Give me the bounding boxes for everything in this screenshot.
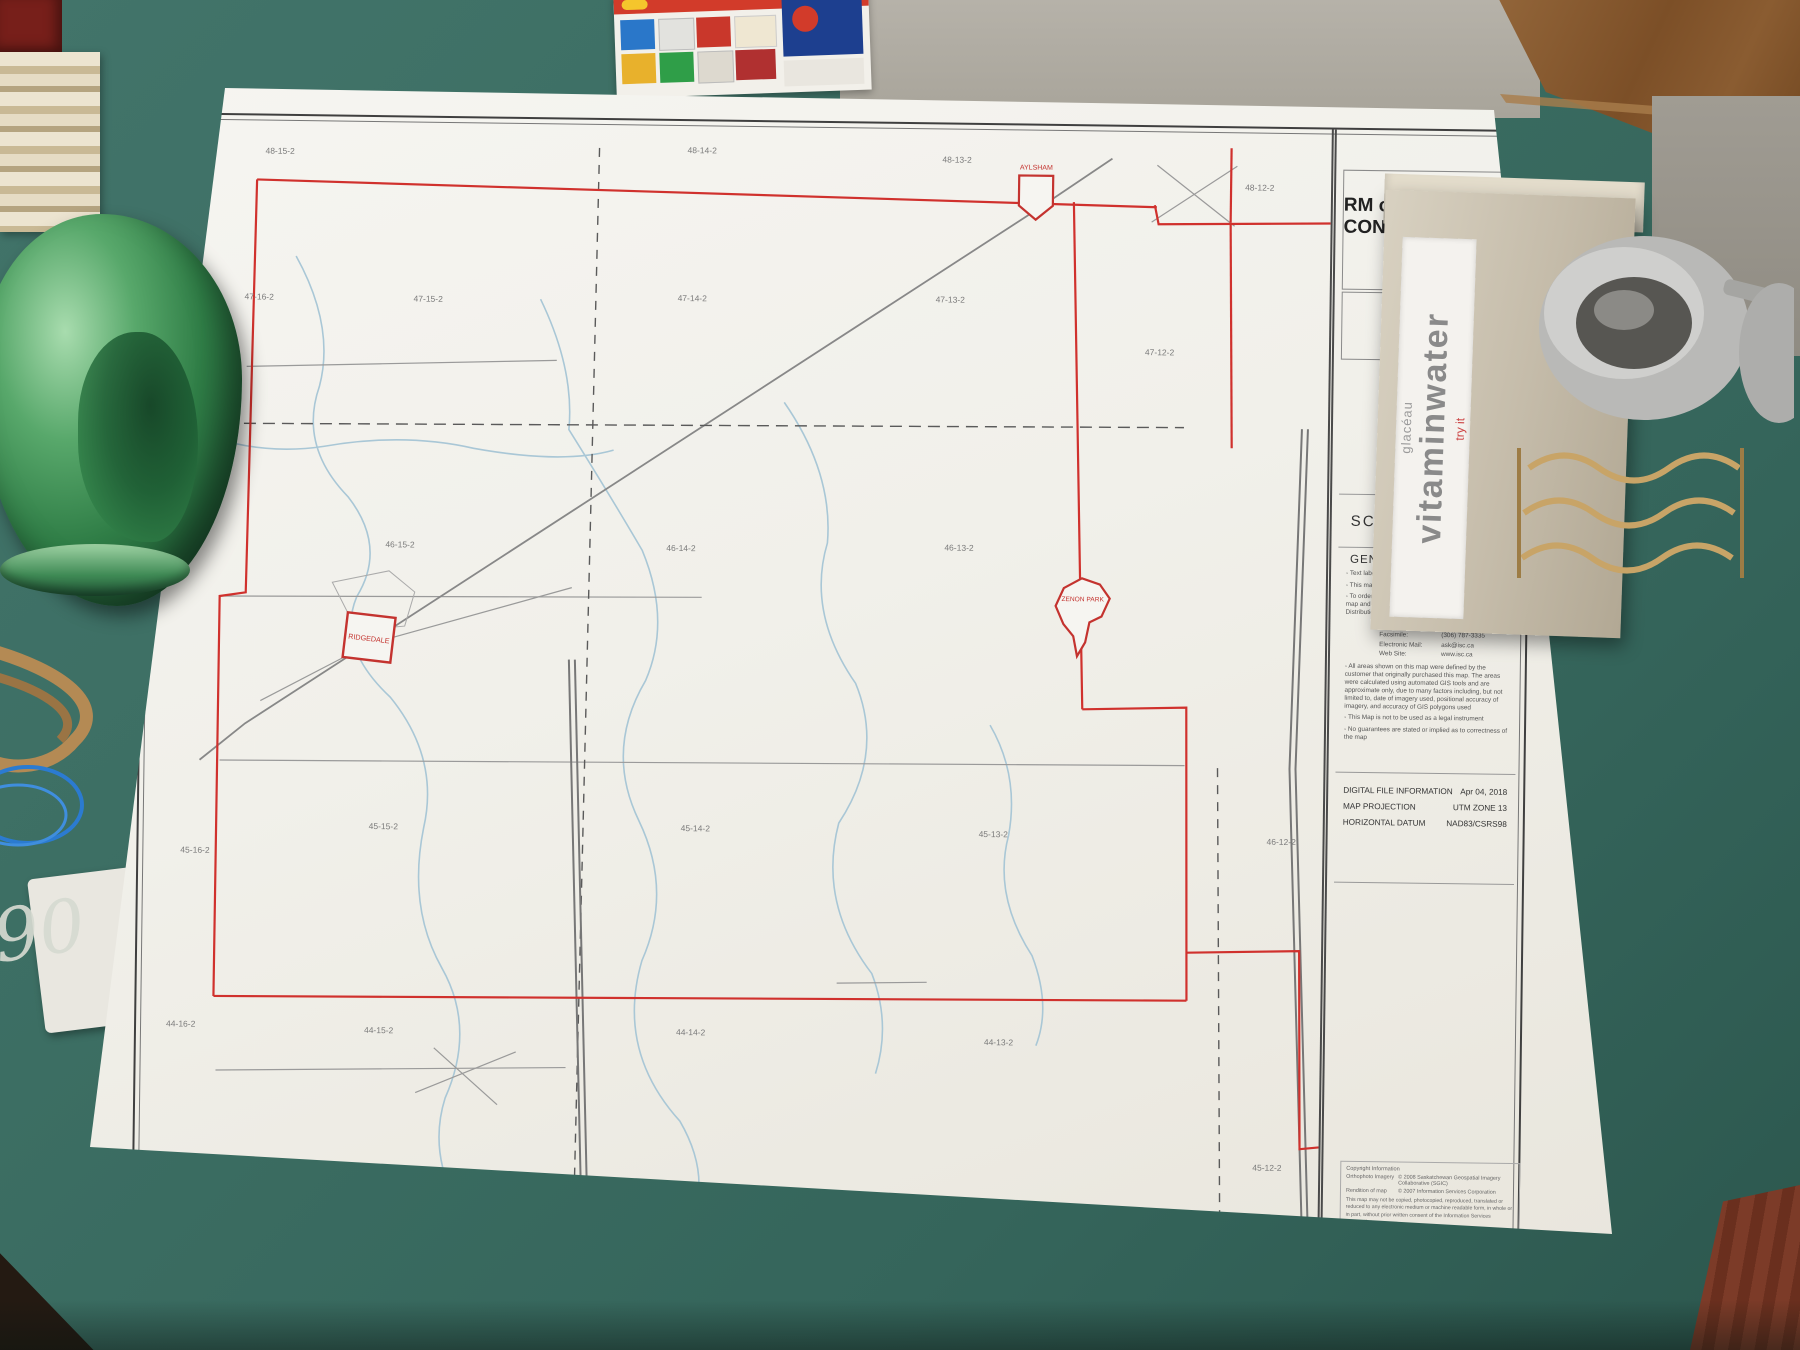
gi-disclaimer-2: - This Map is not to be used as a legal … (1344, 714, 1508, 724)
town-zenon-park: ZENON PARK (1055, 578, 1110, 657)
copyright-value: © 2007 Information Services Corporation (1398, 1188, 1514, 1196)
township-label: 46-12-2 (1266, 837, 1296, 847)
township-label: 48-13-2 (942, 154, 972, 164)
file-info-label: HORIZONTAL DATUM (1343, 818, 1426, 828)
township-label: 45-16-2 (180, 845, 210, 855)
railway-line (200, 147, 1113, 772)
svg-text:ZENON PARK: ZENON PARK (1061, 596, 1104, 604)
box-label-tag: try it (1453, 417, 1468, 440)
township-label: 44-15-2 (364, 1025, 394, 1035)
copyright-row: Orthophoto Imagery © 2008 Saskatchewan G… (1346, 1174, 1514, 1188)
file-info-value: NAD83/CSRS98 (1446, 819, 1507, 829)
dashed-boundary-lines (234, 143, 1234, 1223)
copyright-heading: Copyright Information (1346, 1166, 1514, 1174)
vitaminwater-label: glacéau vitaminwater try it (1389, 237, 1476, 619)
township-label: 44-16-2 (166, 1018, 196, 1028)
copyright-row: Rendition of map © 2007 Information Serv… (1346, 1188, 1514, 1196)
chalk-handwriting: 90 (0, 877, 125, 1014)
svg-text:AYLSHAM: AYLSHAM (1020, 164, 1053, 171)
map-drawing: RIDGEDALE ZENON PARK AYLSHAM 48-15-248-1… (134, 114, 1332, 1231)
bottom-panel: Copyright Information Orthophoto Imagery… (1330, 882, 1515, 1229)
file-info-row: MAP PROJECTION UTM ZONE 13 (1343, 802, 1507, 813)
file-info-panel: DIGITAL FILE INFORMATION Apr 04, 2018 MA… (1334, 772, 1516, 891)
blue-cord (0, 745, 110, 865)
table-edge-shadow (0, 1300, 1800, 1350)
metal-items (1474, 218, 1794, 628)
file-info-label: MAP PROJECTION (1343, 802, 1416, 812)
township-label: 45-13-2 (979, 829, 1009, 839)
green-ceramic-planter (0, 214, 242, 606)
township-label: 44-14-2 (676, 1027, 706, 1037)
copyright-label: Rendition of map (1346, 1188, 1398, 1195)
file-info-value: UTM ZONE 13 (1453, 803, 1507, 813)
township-label: 45-14-2 (681, 823, 711, 833)
township-label: 46-15-2 (385, 539, 415, 549)
township-label: 48-12-2 (1245, 182, 1275, 192)
township-label: 48-14-2 (687, 145, 717, 155)
copyright-paragraph: This map may not be copied, photocopied,… (1346, 1197, 1514, 1228)
township-label: 47-14-2 (678, 293, 708, 303)
paper-stack (0, 52, 100, 232)
town-aylsham: AYLSHAM (1019, 164, 1054, 219)
highway-lines (562, 420, 1318, 1230)
file-info-value: Apr 04, 2018 (1460, 787, 1507, 797)
box-label-main: vitaminwater (1410, 311, 1457, 544)
photo-scene: RIDGEDALE ZENON PARK AYLSHAM 48-15-248-1… (0, 0, 1800, 1350)
township-label: 47-15-2 (414, 294, 444, 304)
copyright-label: Orthophoto Imagery (1346, 1174, 1398, 1187)
floor-surface (840, 0, 1540, 118)
map-area: RIDGEDALE ZENON PARK AYLSHAM 48-15-248-1… (134, 114, 1332, 1231)
file-info-row: HORIZONTAL DATUM NAD83/CSRS98 (1343, 818, 1507, 829)
township-label: 47-12-2 (1145, 347, 1175, 357)
gi-disclaimer-3: - No guarantees are stated or implied as… (1344, 726, 1508, 744)
copyright-block: Copyright Information Orthophoto Imagery… (1339, 1161, 1520, 1239)
township-label: 47-16-2 (245, 291, 275, 301)
gi-disclaimer-1: - All areas shown on this map were defin… (1344, 663, 1509, 713)
township-label: 45-12-2 (1252, 1163, 1282, 1173)
map-neatline-frame: RIDGEDALE ZENON PARK AYLSHAM 48-15-248-1… (132, 112, 1534, 1236)
maroon-object (0, 0, 62, 54)
township-label: 46-13-2 (944, 542, 974, 552)
township-label: 45-15-2 (369, 821, 399, 831)
township-label: 47-13-2 (936, 294, 966, 304)
file-info-row: DIGITAL FILE INFORMATION Apr 04, 2018 (1343, 786, 1507, 797)
township-label: 48-15-2 (265, 146, 295, 156)
creek-lines (194, 255, 1053, 1221)
copyright-value: © 2008 Saskatchewan Geospatial Imagery C… (1398, 1174, 1514, 1188)
township-label: 44-13-2 (984, 1037, 1014, 1047)
file-info-label: DIGITAL FILE INFORMATION (1343, 786, 1453, 796)
town-ridgedale: RIDGEDALE (324, 564, 417, 664)
box-contents (1474, 218, 1794, 628)
township-range-labels: 48-15-248-14-248-13-248-12-247-16-247-15… (164, 138, 1305, 1173)
township-label: 46-14-2 (666, 543, 696, 553)
grocery-flyer (613, 0, 871, 98)
cardboard-box: glacéau vitaminwater try it (1378, 178, 1800, 658)
